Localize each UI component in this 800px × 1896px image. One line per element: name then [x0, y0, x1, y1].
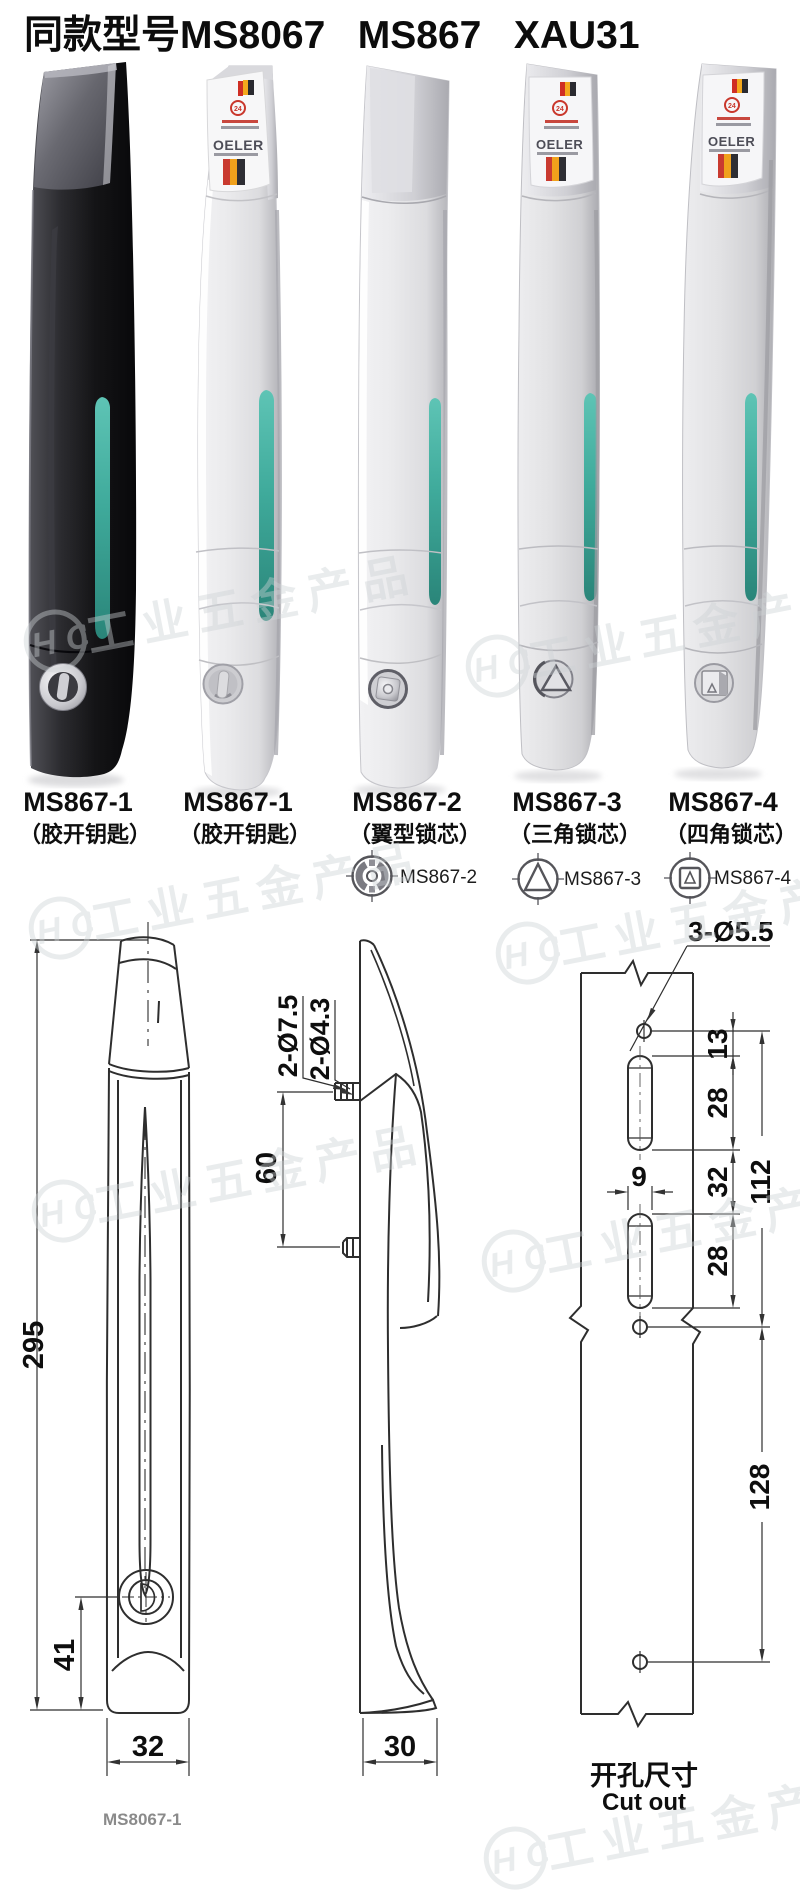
- svg-text:OELER: OELER: [213, 137, 264, 153]
- svg-text:295: 295: [18, 1321, 50, 1369]
- svg-text:13: 13: [702, 1028, 733, 1059]
- svg-text:HC: HC: [500, 927, 565, 977]
- svg-text:HC: HC: [488, 1832, 553, 1882]
- svg-text:HC: HC: [470, 640, 535, 690]
- svg-text:32: 32: [132, 1731, 164, 1763]
- svg-text:41: 41: [49, 1639, 81, 1671]
- svg-text:128: 128: [744, 1464, 775, 1511]
- svg-text:2-Ø7.5: 2-Ø7.5: [273, 995, 303, 1078]
- svg-text:9: 9: [631, 1161, 647, 1192]
- svg-text:2-Ø4.3: 2-Ø4.3: [305, 998, 335, 1081]
- svg-text:OELER: OELER: [708, 134, 755, 149]
- svg-text:30: 30: [384, 1731, 416, 1763]
- svg-text:HC: HC: [36, 1185, 101, 1235]
- svg-text:24: 24: [556, 106, 564, 113]
- svg-text:OELER: OELER: [536, 137, 583, 152]
- svg-text:24: 24: [234, 106, 242, 113]
- svg-text:28: 28: [702, 1087, 733, 1118]
- svg-text:HC: HC: [486, 1235, 551, 1285]
- svg-text:HC: HC: [33, 902, 98, 952]
- svg-text:HC: HC: [28, 615, 93, 665]
- svg-text:24: 24: [728, 103, 736, 110]
- svg-text:开孔尺寸: 开孔尺寸: [590, 1761, 698, 1791]
